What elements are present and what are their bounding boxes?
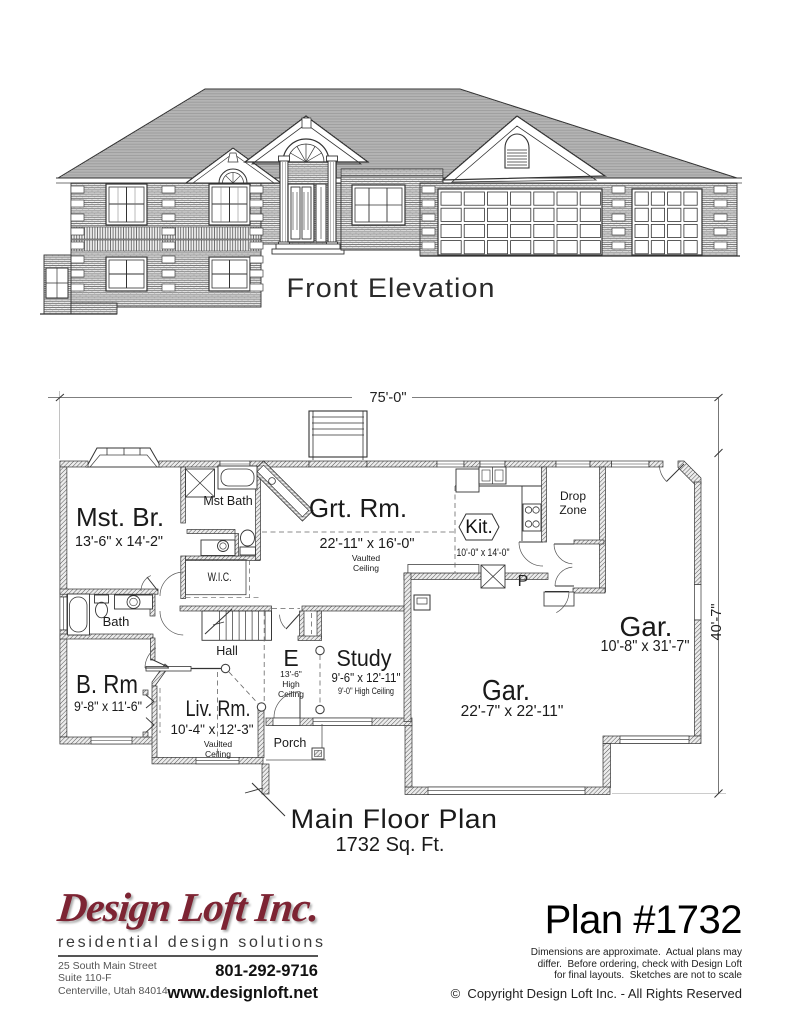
svg-text:Ceiling: Ceiling	[353, 563, 379, 573]
svg-text:Vaulted: Vaulted	[204, 739, 232, 749]
svg-text:10'-8" x 31'-7": 10'-8" x 31'-7"	[601, 638, 690, 655]
svg-text:13'-6" x 14'-2": 13'-6" x 14'-2"	[75, 534, 163, 550]
svg-text:13'-6": 13'-6"	[280, 669, 302, 679]
svg-text:Ceiling: Ceiling	[278, 689, 304, 699]
svg-text:Main Floor Plan: Main Floor Plan	[291, 804, 498, 834]
svg-text:Kit.: Kit.	[465, 517, 492, 538]
svg-text:Mst. Br.: Mst. Br.	[76, 502, 164, 532]
svg-text:9'-0" High Ceiling: 9'-0" High Ceiling	[338, 686, 394, 696]
svg-text:Zone: Zone	[559, 503, 587, 517]
svg-text:Porch: Porch	[274, 736, 307, 750]
svg-text:Front Elevation: Front Elevation	[287, 273, 496, 303]
svg-text:Mst Bath: Mst Bath	[203, 494, 252, 508]
svg-text:Study: Study	[337, 645, 392, 671]
svg-text:9'-8" x 11'-6": 9'-8" x 11'-6"	[74, 698, 142, 714]
svg-text:Drop: Drop	[560, 489, 586, 503]
svg-text:B. Rm: B. Rm	[76, 669, 138, 699]
svg-text:22'-7" x 22'-11": 22'-7" x 22'-11"	[461, 703, 564, 720]
svg-text:1732 Sq. Ft.: 1732 Sq. Ft.	[336, 834, 445, 856]
svg-text:P: P	[518, 573, 529, 590]
svg-text:High: High	[282, 679, 300, 689]
svg-text:Liv. Rm.: Liv. Rm.	[186, 696, 251, 721]
svg-text:Grt. Rm.: Grt. Rm.	[309, 493, 407, 523]
svg-text:9'-6" x 12'-11": 9'-6" x 12'-11"	[332, 671, 401, 685]
svg-text:Ceiling: Ceiling	[205, 749, 231, 759]
svg-text:E: E	[283, 645, 298, 671]
svg-text:Bath: Bath	[103, 614, 130, 629]
svg-text:10'-0" x 14'-0": 10'-0" x 14'-0"	[457, 547, 510, 559]
svg-text:W.I.C.: W.I.C.	[208, 572, 232, 584]
svg-text:Hall: Hall	[216, 644, 238, 658]
svg-text:22'-11" x 16'-0": 22'-11" x 16'-0"	[320, 535, 415, 552]
svg-text:40'-7": 40'-7"	[709, 604, 725, 641]
svg-text:Vaulted: Vaulted	[352, 553, 380, 563]
svg-text:10'-4" x 12'-3": 10'-4" x 12'-3"	[171, 721, 254, 737]
svg-text:75'-0": 75'-0"	[370, 390, 407, 406]
